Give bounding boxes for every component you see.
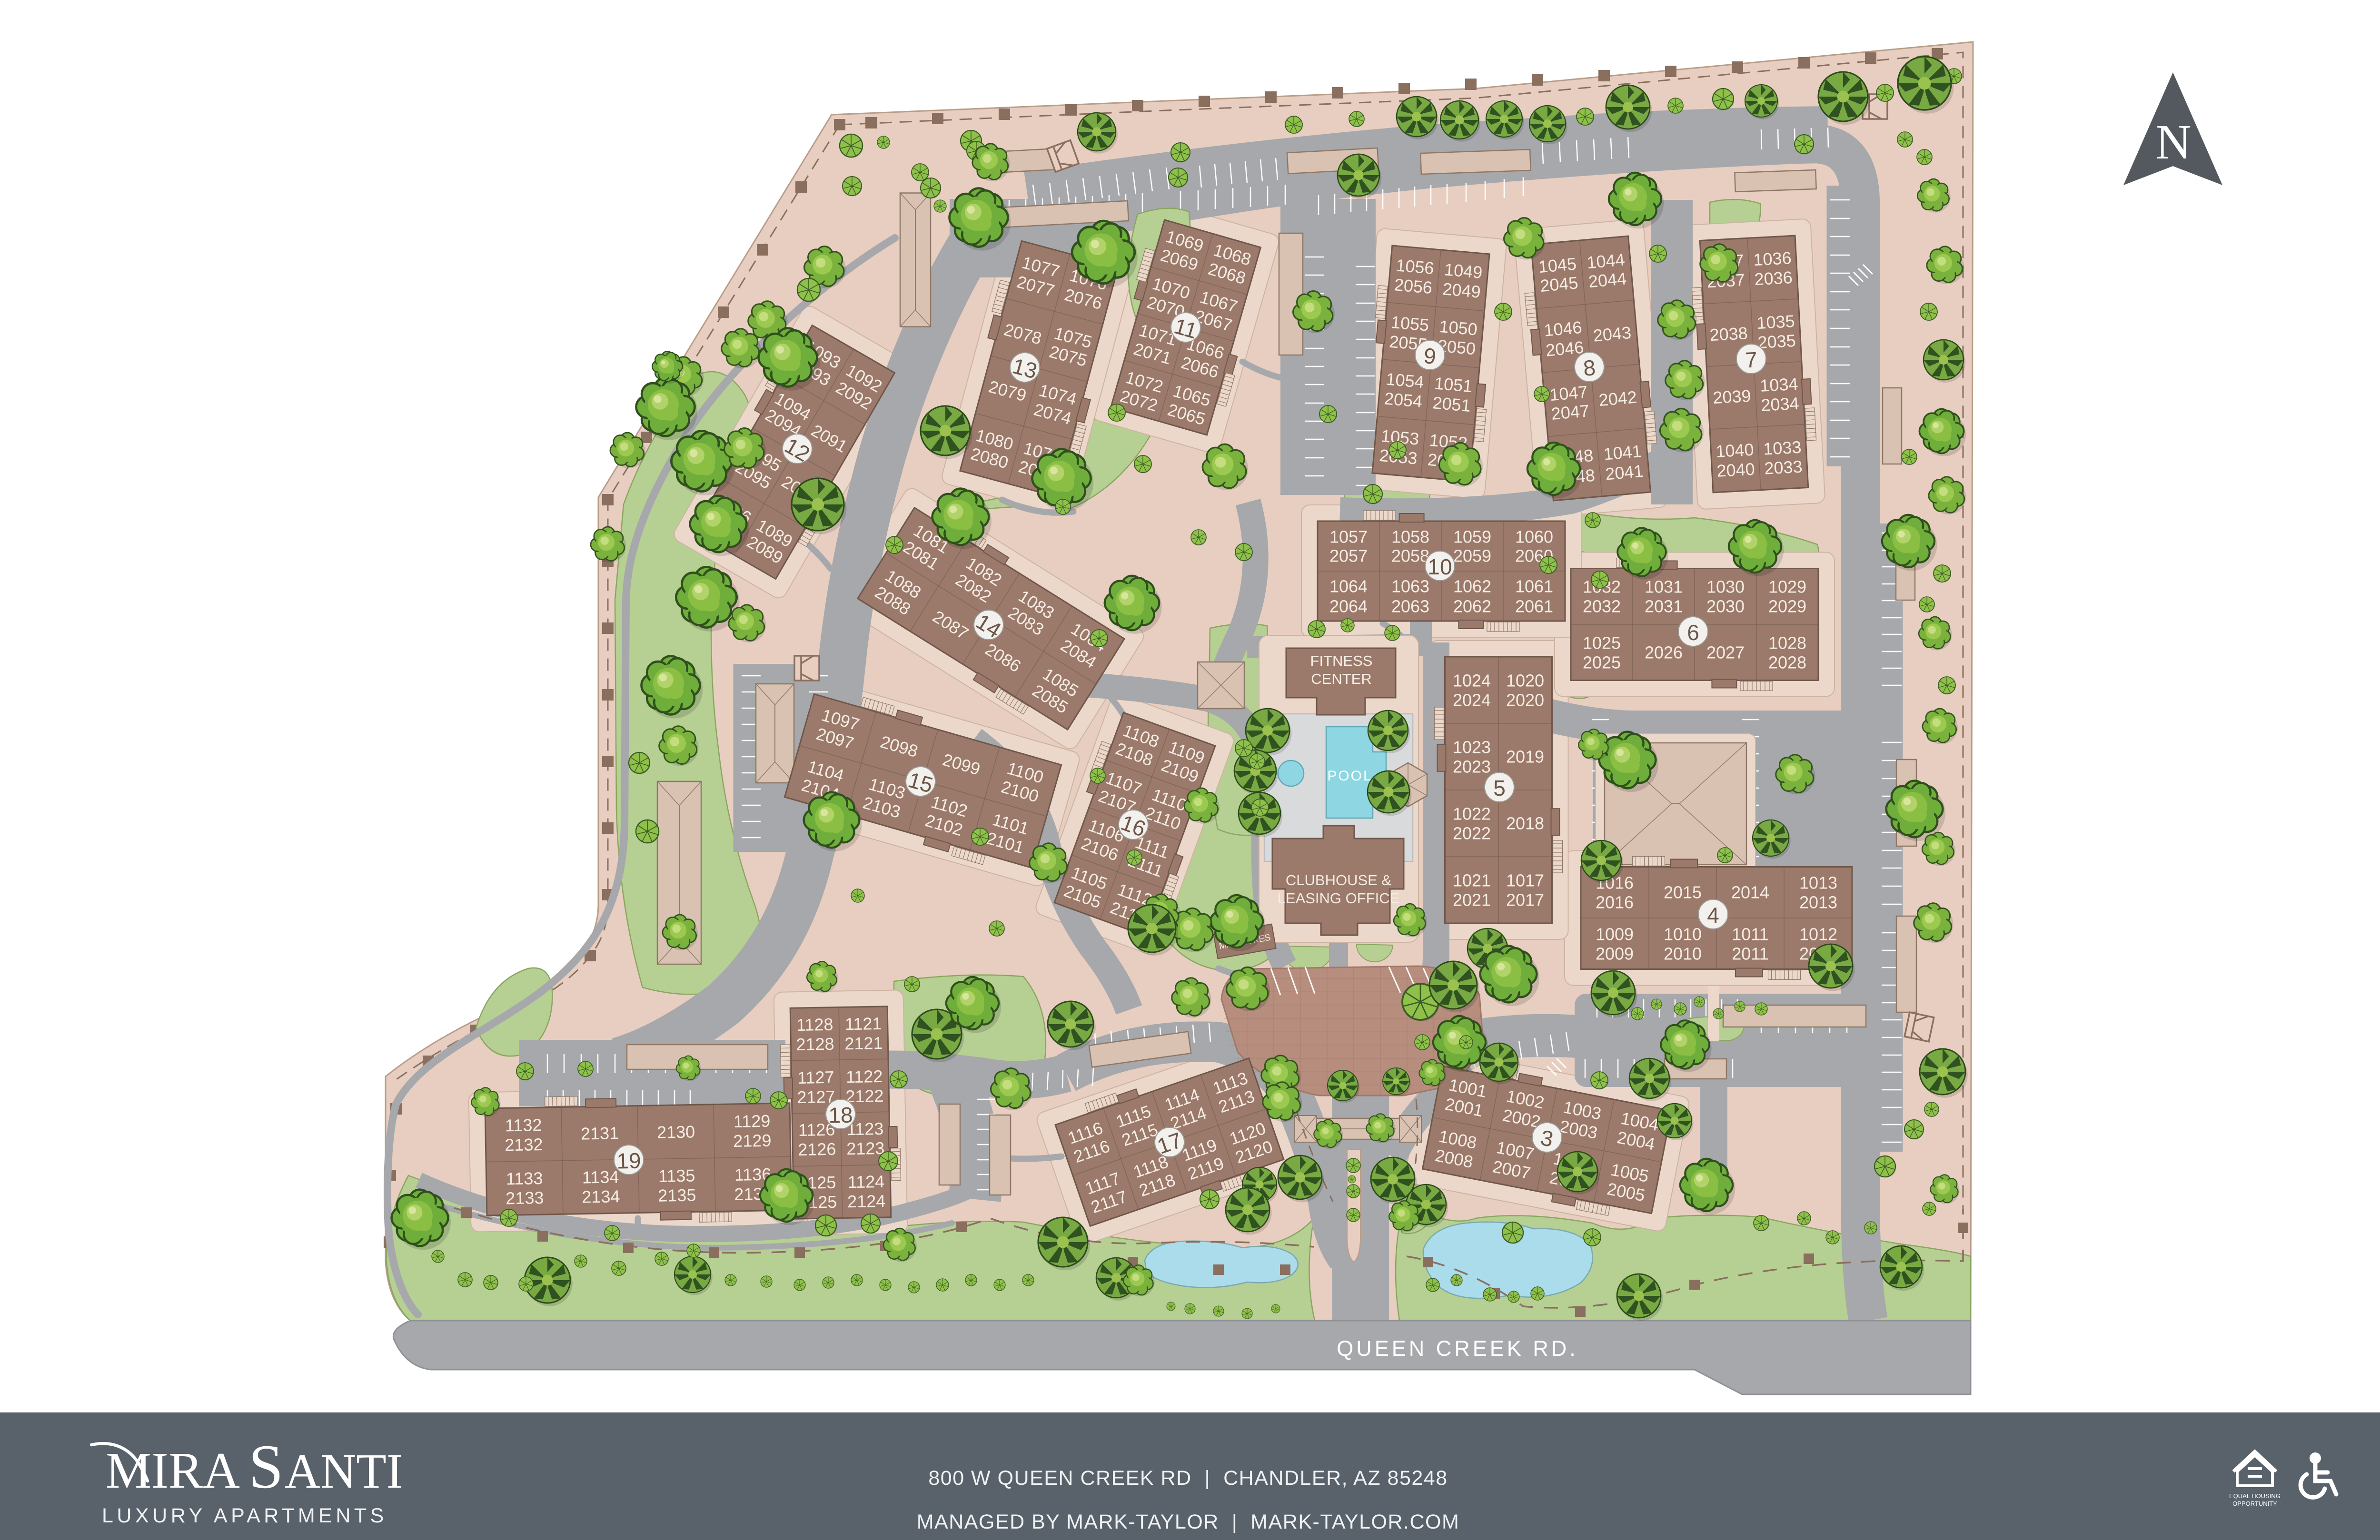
svg-text:2062: 2062 — [1453, 597, 1491, 616]
svg-text:1127: 1127 — [797, 1067, 834, 1087]
svg-text:EQUAL HOUSING: EQUAL HOUSING — [2229, 1492, 2281, 1500]
svg-text:2015: 2015 — [1664, 883, 1702, 902]
svg-text:2011: 2011 — [1732, 944, 1768, 964]
svg-text:1062: 1062 — [1453, 577, 1491, 596]
svg-text:1059: 1059 — [1453, 527, 1491, 547]
svg-text:1061: 1061 — [1515, 577, 1553, 596]
svg-text:2031: 2031 — [1645, 597, 1683, 616]
svg-text:2032: 2032 — [1583, 597, 1621, 616]
svg-text:POOL: POOL — [1327, 768, 1372, 784]
svg-text:2040: 2040 — [1716, 459, 1755, 481]
svg-text:1036: 1036 — [1753, 248, 1792, 269]
svg-text:2056: 2056 — [1393, 275, 1433, 297]
svg-text:N: N — [2155, 115, 2191, 169]
svg-text:2135: 2135 — [658, 1185, 696, 1205]
svg-text:1040: 1040 — [1715, 440, 1754, 461]
svg-text:2024: 2024 — [1453, 691, 1491, 710]
svg-text:2036: 2036 — [1754, 267, 1793, 289]
svg-text:1049: 1049 — [1444, 259, 1483, 282]
svg-text:2033: 2033 — [1764, 457, 1803, 478]
svg-text:1021: 1021 — [1453, 871, 1491, 890]
svg-text:1012: 1012 — [1799, 925, 1837, 944]
svg-text:1051: 1051 — [1434, 373, 1473, 396]
svg-text:2021: 2021 — [1453, 890, 1491, 910]
svg-text:2020: 2020 — [1506, 691, 1544, 710]
svg-text:2045: 2045 — [1539, 273, 1579, 296]
svg-text:1128: 1128 — [796, 1015, 833, 1035]
svg-text:2030: 2030 — [1706, 597, 1745, 616]
svg-text:2022: 2022 — [1453, 824, 1491, 843]
svg-text:1121: 1121 — [845, 1014, 882, 1034]
svg-text:1134: 1134 — [582, 1167, 619, 1187]
svg-text:LEASING OFFICE: LEASING OFFICE — [1278, 890, 1400, 907]
svg-text:1050: 1050 — [1438, 316, 1478, 339]
svg-text:2016: 2016 — [1596, 893, 1634, 912]
svg-text:1124: 1124 — [847, 1172, 884, 1192]
svg-text:1133: 1133 — [506, 1168, 543, 1188]
svg-text:800 W QUEEN CREEK RD | CHAND: 800 W QUEEN CREEK RD | CHANDLER, AZ 8524… — [928, 1467, 1448, 1490]
svg-text:2019: 2019 — [1506, 747, 1544, 767]
svg-text:19: 19 — [616, 1148, 641, 1174]
svg-text:CLUBHOUSE &: CLUBHOUSE & — [1286, 872, 1392, 888]
svg-text:1020: 1020 — [1506, 671, 1544, 691]
svg-text:ANTI: ANTI — [285, 1444, 403, 1499]
svg-text:2028: 2028 — [1768, 653, 1806, 672]
svg-text:8: 8 — [1582, 355, 1597, 381]
svg-text:1041: 1041 — [1603, 441, 1642, 464]
svg-text:1035: 1035 — [1756, 311, 1795, 333]
svg-text:2041: 2041 — [1605, 461, 1644, 484]
svg-text:2129: 2129 — [733, 1131, 772, 1151]
svg-text:1024: 1024 — [1453, 671, 1491, 691]
svg-text:FITNESS: FITNESS — [1310, 652, 1373, 669]
svg-text:2132: 2132 — [505, 1135, 543, 1155]
svg-text:2010: 2010 — [1664, 944, 1702, 964]
svg-text:2043: 2043 — [1592, 323, 1632, 346]
svg-text:1060: 1060 — [1515, 527, 1553, 547]
svg-text:1031: 1031 — [1645, 577, 1683, 597]
svg-text:2063: 2063 — [1391, 597, 1429, 616]
svg-text:2027: 2027 — [1706, 643, 1745, 662]
svg-text:2023: 2023 — [1453, 757, 1491, 777]
svg-text:1013: 1013 — [1799, 873, 1837, 893]
svg-text:4: 4 — [1707, 903, 1719, 928]
svg-text:2131: 2131 — [581, 1123, 619, 1143]
svg-text:2121: 2121 — [844, 1033, 883, 1053]
svg-text:1009: 1009 — [1596, 925, 1634, 944]
svg-text:2123: 2123 — [846, 1138, 885, 1158]
svg-text:2039: 2039 — [1712, 386, 1751, 407]
svg-text:1017: 1017 — [1506, 871, 1544, 890]
svg-text:2029: 2029 — [1768, 597, 1806, 616]
svg-text:2128: 2128 — [796, 1034, 834, 1054]
svg-text:1129: 1129 — [734, 1111, 771, 1131]
svg-text:7: 7 — [1745, 347, 1758, 372]
svg-text:1056: 1056 — [1395, 255, 1435, 278]
svg-text:1010: 1010 — [1664, 925, 1702, 944]
svg-text:2133: 2133 — [506, 1188, 544, 1208]
svg-text:1122: 1122 — [846, 1066, 883, 1086]
svg-text:2013: 2013 — [1799, 893, 1837, 912]
svg-text:6: 6 — [1687, 620, 1699, 645]
svg-text:2059: 2059 — [1453, 546, 1491, 566]
svg-text:1025: 1025 — [1583, 633, 1621, 653]
svg-text:2025: 2025 — [1583, 653, 1621, 672]
svg-text:OPPORTUNITY: OPPORTUNITY — [2232, 1500, 2277, 1507]
svg-text:2051: 2051 — [1432, 393, 1471, 415]
svg-text:1033: 1033 — [1763, 437, 1802, 459]
svg-text:1022: 1022 — [1453, 804, 1491, 824]
svg-text:1023: 1023 — [1453, 738, 1491, 757]
svg-text:2130: 2130 — [657, 1122, 695, 1142]
svg-text:2058: 2058 — [1391, 546, 1429, 566]
svg-text:S: S — [248, 1431, 283, 1501]
svg-text:2034: 2034 — [1760, 394, 1799, 415]
svg-text:2061: 2061 — [1515, 597, 1553, 616]
svg-text:2026: 2026 — [1645, 643, 1683, 662]
svg-text:1055: 1055 — [1390, 312, 1429, 335]
svg-text:LUXURY APARTMENTS: LUXURY APARTMENTS — [102, 1504, 387, 1527]
svg-text:MANAGED BY MARK-TAYLOR | MAR: MANAGED BY MARK-TAYLOR | MARK-TAYLOR.COM — [917, 1510, 1460, 1533]
svg-text:1028: 1028 — [1768, 633, 1806, 653]
svg-text:2038: 2038 — [1709, 323, 1748, 345]
svg-text:2126: 2126 — [798, 1139, 836, 1159]
svg-text:2064: 2064 — [1329, 597, 1368, 616]
svg-text:QUEEN CREEK RD.: QUEEN CREEK RD. — [1337, 1336, 1578, 1361]
svg-text:2009: 2009 — [1596, 944, 1634, 964]
svg-text:2049: 2049 — [1442, 279, 1481, 302]
svg-text:2014: 2014 — [1731, 883, 1769, 902]
svg-text:1054: 1054 — [1385, 369, 1425, 392]
svg-text:2124: 2124 — [847, 1191, 886, 1211]
svg-text:1132: 1132 — [505, 1115, 542, 1135]
svg-text:2017: 2017 — [1506, 890, 1544, 910]
svg-text:2042: 2042 — [1598, 387, 1637, 410]
svg-text:1034: 1034 — [1759, 374, 1798, 395]
svg-text:2018: 2018 — [1506, 814, 1544, 833]
svg-text:1058: 1058 — [1391, 527, 1429, 547]
svg-text:1030: 1030 — [1706, 577, 1745, 597]
svg-text:18: 18 — [828, 1103, 853, 1128]
svg-text:9: 9 — [1423, 343, 1437, 369]
svg-text:2057: 2057 — [1329, 546, 1368, 566]
svg-text:1135: 1135 — [658, 1165, 695, 1185]
svg-text:CENTER: CENTER — [1311, 671, 1371, 687]
svg-text:5: 5 — [1493, 776, 1506, 800]
svg-text:2054: 2054 — [1383, 388, 1423, 411]
svg-text:1057: 1057 — [1329, 527, 1368, 547]
svg-text:2044: 2044 — [1587, 268, 1627, 291]
svg-text:1029: 1029 — [1768, 577, 1806, 597]
svg-text:2035: 2035 — [1757, 331, 1796, 352]
svg-text:2134: 2134 — [582, 1186, 620, 1206]
svg-text:1046: 1046 — [1543, 317, 1583, 340]
svg-text:10: 10 — [1428, 554, 1452, 579]
svg-text:1063: 1063 — [1391, 577, 1429, 596]
svg-text:1011: 1011 — [1732, 925, 1768, 944]
svg-text:2047: 2047 — [1550, 401, 1590, 424]
svg-text:1064: 1064 — [1329, 577, 1368, 596]
